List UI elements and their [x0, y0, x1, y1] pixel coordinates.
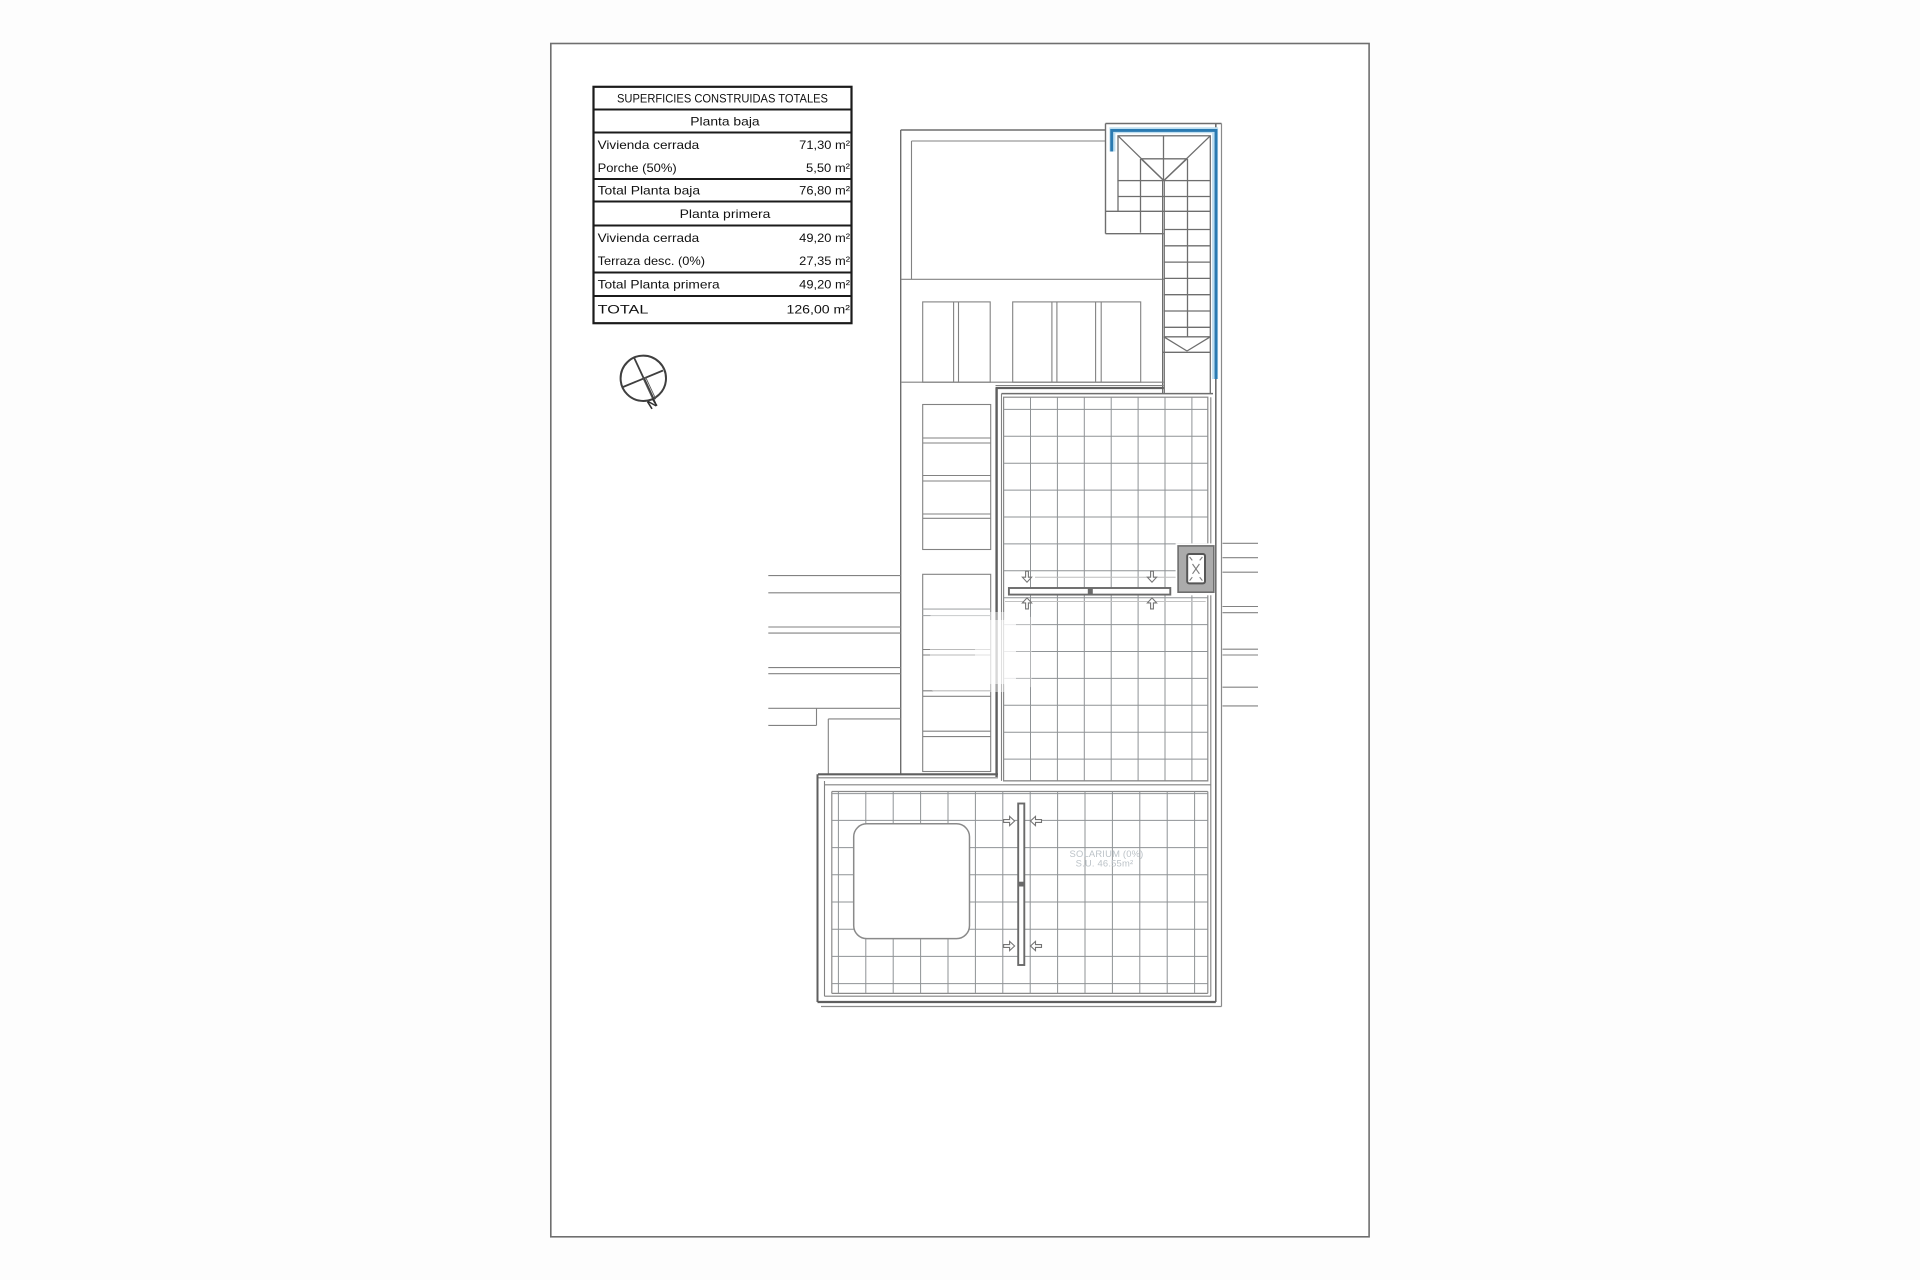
svg-text:Total Planta primera: Total Planta primera [598, 277, 720, 291]
svg-text:126,00 m²: 126,00 m² [787, 303, 851, 317]
svg-text:49,20 m²: 49,20 m² [799, 277, 850, 291]
svg-text:71,30 m²: 71,30 m² [799, 138, 850, 152]
svg-text:S.U. 46.55m²: S.U. 46.55m² [1076, 857, 1134, 868]
svg-text:SUPERFICIES CONSTRUIDAS TOTALE: SUPERFICIES CONSTRUIDAS TOTALES [617, 92, 828, 106]
svg-text:76,80 m²: 76,80 m² [799, 184, 850, 198]
svg-text:49,20 m²: 49,20 m² [799, 231, 850, 245]
svg-text:Vivienda cerrada: Vivienda cerrada [598, 138, 700, 152]
svg-text:Vivienda cerrada: Vivienda cerrada [598, 231, 700, 245]
svg-text:Terraza desc. (0%): Terraza desc. (0%) [598, 254, 705, 268]
svg-text:TOTAL: TOTAL [598, 303, 649, 317]
svg-text:Porche (50%): Porche (50%) [598, 161, 677, 175]
svg-text:Planta primera: Planta primera [680, 207, 771, 221]
svg-text:Total Planta baja: Total Planta baja [598, 184, 701, 198]
svg-text:5,50 m²: 5,50 m² [806, 161, 850, 175]
svg-text:27,35 m²: 27,35 m² [799, 254, 850, 268]
svg-text:Planta baja: Planta baja [690, 115, 760, 129]
